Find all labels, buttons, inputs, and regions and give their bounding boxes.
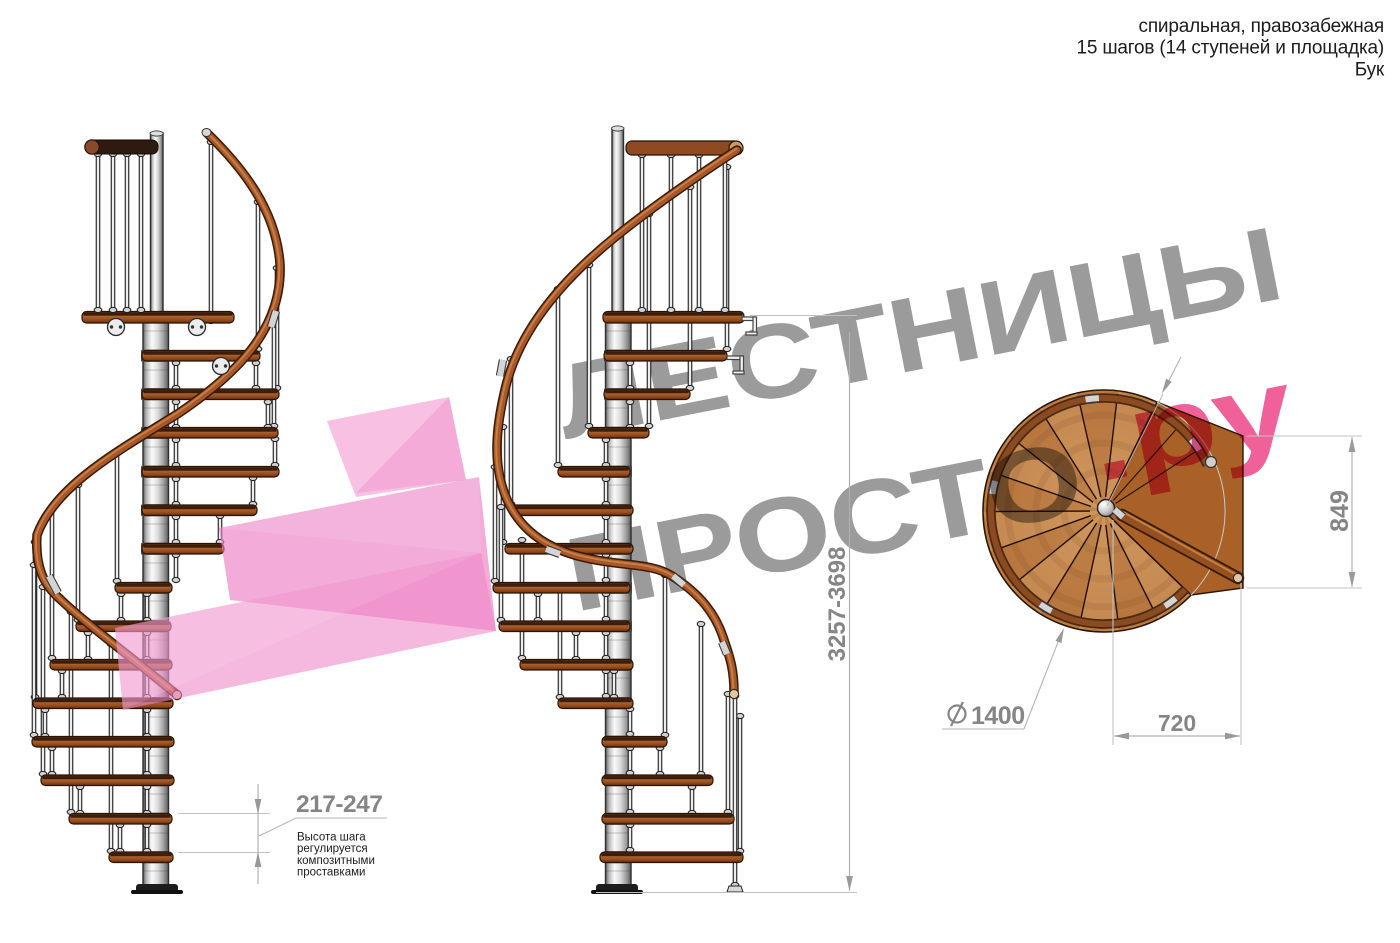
svg-text:3257-3698: 3257-3698 bbox=[824, 547, 851, 662]
svg-text:проставками: проставками bbox=[297, 867, 365, 879]
svg-text:композитными: композитными bbox=[297, 855, 375, 867]
svg-text:регулируется: регулируется bbox=[297, 843, 368, 855]
svg-text:Высота шага: Высота шага bbox=[297, 832, 366, 844]
svg-text:849: 849 bbox=[1326, 490, 1354, 532]
svg-text:Бук: Бук bbox=[1355, 60, 1385, 81]
svg-text:1400: 1400 bbox=[971, 702, 1025, 730]
svg-text:720: 720 bbox=[1158, 710, 1196, 736]
svg-text:спиральная, правозабежная: спиральная, правозабежная bbox=[1139, 16, 1384, 37]
svg-text:15 шагов (14 ступеней и площад: 15 шагов (14 ступеней и площадка) bbox=[1077, 38, 1385, 59]
svg-text:217-247: 217-247 bbox=[296, 791, 382, 818]
